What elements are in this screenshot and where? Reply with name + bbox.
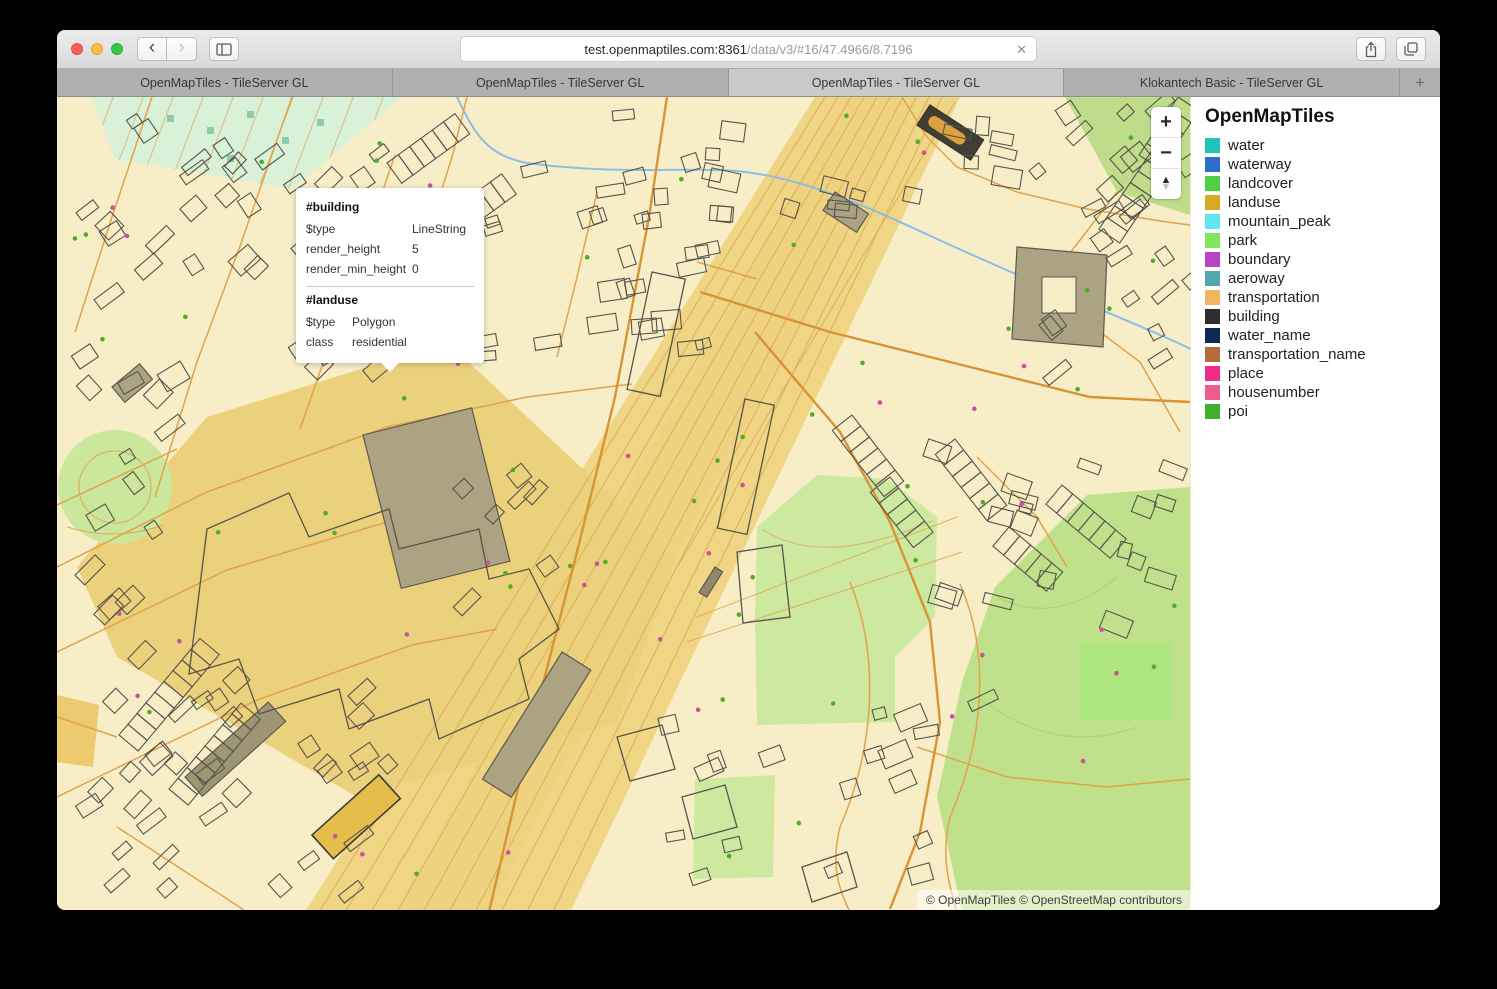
legend-swatch-boundary (1205, 252, 1220, 267)
legend-item-place: place (1205, 364, 1440, 383)
legend-swatch-aeroway (1205, 271, 1220, 286)
legend-swatch-transportation (1205, 290, 1220, 305)
legend-item-landuse: landuse (1205, 193, 1440, 212)
tab-bar: OpenMapTiles - TileServer GLOpenMapTiles… (57, 69, 1440, 97)
popup-row: render_min_height0 (306, 259, 474, 279)
legend-swatch-landuse (1205, 195, 1220, 210)
housenumber-dot (658, 637, 663, 642)
poi-dot (1172, 604, 1177, 609)
poi-dot (511, 468, 516, 473)
tab-3[interactable]: OpenMapTiles - TileServer GL (728, 69, 1064, 96)
legend-item-boundary: boundary (1205, 250, 1440, 269)
tab-1[interactable]: OpenMapTiles - TileServer GL (57, 69, 392, 96)
legend-panel: OpenMapTiles waterwaterwaylandcoverlandu… (1191, 97, 1440, 910)
legend-swatch-place (1205, 366, 1220, 381)
legend-swatch-water (1205, 138, 1220, 153)
housenumber-dot (980, 653, 985, 658)
popup-divider (306, 286, 474, 287)
poi-dot (792, 243, 797, 248)
legend-label: boundary (1228, 250, 1291, 269)
housenumber-dot (177, 639, 182, 644)
poi-dot (727, 854, 732, 859)
popup-key: $type (306, 219, 412, 239)
poi-dot (73, 236, 78, 241)
poi-dot (810, 412, 815, 417)
housenumber-dot (360, 852, 365, 857)
share-icon (1363, 41, 1379, 58)
popup-row: render_height5 (306, 239, 474, 259)
popup-section-title: #building (306, 198, 474, 216)
poi-dot (679, 177, 684, 182)
popup-row: $typePolygon (306, 312, 474, 332)
popup-value: Polygon (352, 312, 395, 332)
poi-dot (692, 499, 697, 504)
legend-swatch-landcover (1205, 176, 1220, 191)
housenumber-dot (110, 205, 115, 210)
housenumber-dot (1099, 628, 1104, 633)
legend-label: landcover (1228, 174, 1293, 193)
popup-value: LineString (412, 219, 466, 239)
legend-label: water_name (1228, 326, 1311, 345)
housenumber-dot (878, 400, 883, 405)
legend-swatch-water_name (1205, 328, 1220, 343)
sidebar-icon (216, 43, 232, 56)
zoom-in-button[interactable]: + (1151, 107, 1181, 137)
housenumber-dot (506, 850, 511, 855)
legend-item-aeroway: aeroway (1205, 269, 1440, 288)
poi-dot (216, 530, 221, 535)
legend-swatch-transportation_name (1205, 347, 1220, 362)
poi-dot (913, 558, 918, 563)
sidebar-button[interactable] (209, 37, 239, 61)
legend-label: waterway (1228, 155, 1291, 174)
zoom-window-button[interactable] (111, 43, 123, 55)
poi-dot (1107, 306, 1112, 311)
legend-label: transportation (1228, 288, 1320, 307)
poi-dot (860, 361, 865, 366)
housenumber-dot (950, 714, 955, 719)
housenumber-dot (696, 708, 701, 713)
legend-swatch-building (1205, 309, 1220, 324)
housenumber-dot (333, 834, 338, 839)
poi-dot (183, 315, 188, 320)
poi-dot (375, 158, 380, 163)
poi-dot (831, 701, 836, 706)
compass-south-icon: ▼ (1161, 184, 1172, 191)
traffic-lights (71, 43, 123, 55)
browser-window: ‹ › test.openmaptiles.com:8361/data/v3/#… (57, 30, 1440, 910)
housenumber-dot (626, 454, 631, 459)
housenumber-dot (1022, 364, 1027, 369)
poi-dot (1085, 288, 1090, 293)
legend-swatch-housenumber (1205, 385, 1220, 400)
legend-item-housenumber: housenumber (1205, 383, 1440, 402)
poi-dot (503, 571, 508, 576)
zoom-out-button[interactable]: − (1151, 137, 1181, 168)
feature-inspect-popup: #building$typeLineStringrender_height5re… (296, 188, 484, 363)
poi-dot (508, 584, 513, 589)
housenumber-dot (405, 632, 410, 637)
legend-label: mountain_peak (1228, 212, 1331, 231)
housenumber-dot (922, 150, 927, 155)
close-window-button[interactable] (71, 43, 83, 55)
legend-title: OpenMapTiles (1205, 106, 1440, 128)
forward-button[interactable]: › (167, 37, 197, 61)
poi-dot (1006, 327, 1011, 332)
browser-toolbar: ‹ › test.openmaptiles.com:8361/data/v3/#… (57, 30, 1440, 69)
legend-swatch-waterway (1205, 157, 1220, 172)
popup-row: $typeLineString (306, 219, 474, 239)
housenumber-dot (595, 561, 600, 566)
housenumber-dot (486, 561, 491, 566)
forward-icon: › (178, 38, 184, 57)
poi-dot (147, 710, 152, 715)
popup-key: render_min_height (306, 259, 412, 279)
poi-dot (844, 114, 849, 119)
back-button[interactable]: ‹ (137, 37, 167, 61)
legend-item-transportation: transportation (1205, 288, 1440, 307)
map-attribution: © OpenMapTiles © OpenStreetMap contribut… (917, 890, 1191, 910)
legend-item-park: park (1205, 231, 1440, 250)
housenumber-dot (740, 483, 745, 488)
poi-dot (715, 458, 720, 463)
legend-label: place (1228, 364, 1264, 383)
legend-item-water_name: water_name (1205, 326, 1440, 345)
legend-item-poi: poi (1205, 402, 1440, 421)
legend-label: aeroway (1228, 269, 1285, 288)
housenumber-dot (135, 694, 140, 699)
poi-dot (981, 500, 986, 505)
minimize-window-button[interactable] (91, 43, 103, 55)
clear-url-button[interactable]: ✕ (1016, 42, 1027, 58)
poi-dot (1129, 135, 1134, 140)
poi-dot (585, 255, 590, 260)
housenumber-dot (582, 583, 587, 588)
poi-dot (603, 560, 608, 565)
tab-overview-icon (1403, 41, 1419, 57)
poi-dot (377, 141, 382, 146)
map-canvas[interactable]: + − ▲ ▼ #building$typeLineStringrender_h… (57, 97, 1191, 910)
map-graphics (57, 97, 1191, 910)
legend-swatch-mountain_peak (1205, 214, 1220, 229)
poi-dot (916, 139, 921, 144)
legend-label: transportation_name (1228, 345, 1366, 364)
map-zoom-control: + − ▲ ▼ (1151, 107, 1181, 199)
legend-swatch-park (1205, 233, 1220, 248)
legend-item-transportation_name: transportation_name (1205, 345, 1440, 364)
poi-dot (720, 697, 725, 702)
poi-dot (740, 435, 745, 440)
compass-button[interactable]: ▲ ▼ (1151, 168, 1181, 199)
popup-value: 5 (412, 239, 419, 259)
legend-label: landuse (1228, 193, 1281, 212)
tab-2[interactable]: OpenMapTiles - TileServer GL (392, 69, 728, 96)
housenumber-dot (1114, 671, 1119, 676)
poi-dot (1075, 387, 1080, 392)
legend-item-mountain_peak: mountain_peak (1205, 212, 1440, 231)
poi-dot (568, 564, 573, 569)
housenumber-dot (1081, 759, 1086, 764)
legend-item-waterway: waterway (1205, 155, 1440, 174)
legend-label: building (1228, 307, 1280, 326)
legend-item-building: building (1205, 307, 1440, 326)
url-field[interactable]: test.openmaptiles.com:8361/data/v3/#16/4… (460, 36, 1037, 62)
legend-swatch-poi (1205, 404, 1220, 419)
popup-value: 0 (412, 259, 419, 279)
back-icon: ‹ (149, 38, 155, 57)
housenumber-dot (707, 551, 712, 556)
housenumber-dot (117, 611, 122, 616)
housenumber-dot (1019, 502, 1024, 507)
housenumber-dot (125, 234, 130, 239)
legend-label: park (1228, 231, 1257, 250)
poi-dot (750, 575, 755, 580)
legend-item-landcover: landcover (1205, 174, 1440, 193)
url-host-text: test.openmaptiles.com:8361 (584, 42, 747, 57)
poi-dot (100, 337, 105, 342)
housenumber-dot (972, 407, 977, 412)
poi-dot (797, 821, 802, 826)
legend-label: poi (1228, 402, 1248, 421)
popup-value: residential (352, 332, 407, 352)
popup-key: $type (306, 312, 352, 332)
tab-4[interactable]: Klokantech Basic - TileServer GL (1063, 69, 1399, 96)
poi-dot (259, 160, 264, 165)
poi-dot (1152, 664, 1157, 669)
new-tab-button[interactable]: + (1399, 69, 1440, 96)
poi-dot (402, 396, 407, 401)
poi-dot (737, 612, 742, 617)
tab-overview-button[interactable] (1396, 37, 1426, 61)
share-button[interactable] (1356, 37, 1386, 61)
popup-section-title: #landuse (306, 291, 474, 309)
legend-item-water: water (1205, 136, 1440, 155)
url-path-text: /data/v3/#16/47.4966/8.7196 (747, 42, 913, 57)
popup-key: class (306, 332, 352, 352)
poi-dot (323, 511, 328, 516)
poi-dot (414, 872, 419, 877)
legend-label: water (1228, 136, 1265, 155)
poi-dot (905, 484, 910, 489)
poi-dot (84, 232, 89, 237)
popup-key: render_height (306, 239, 412, 259)
popup-row: classresidential (306, 332, 474, 352)
poi-dot (332, 531, 337, 536)
poi-dot (1151, 259, 1156, 264)
legend-label: housenumber (1228, 383, 1320, 402)
